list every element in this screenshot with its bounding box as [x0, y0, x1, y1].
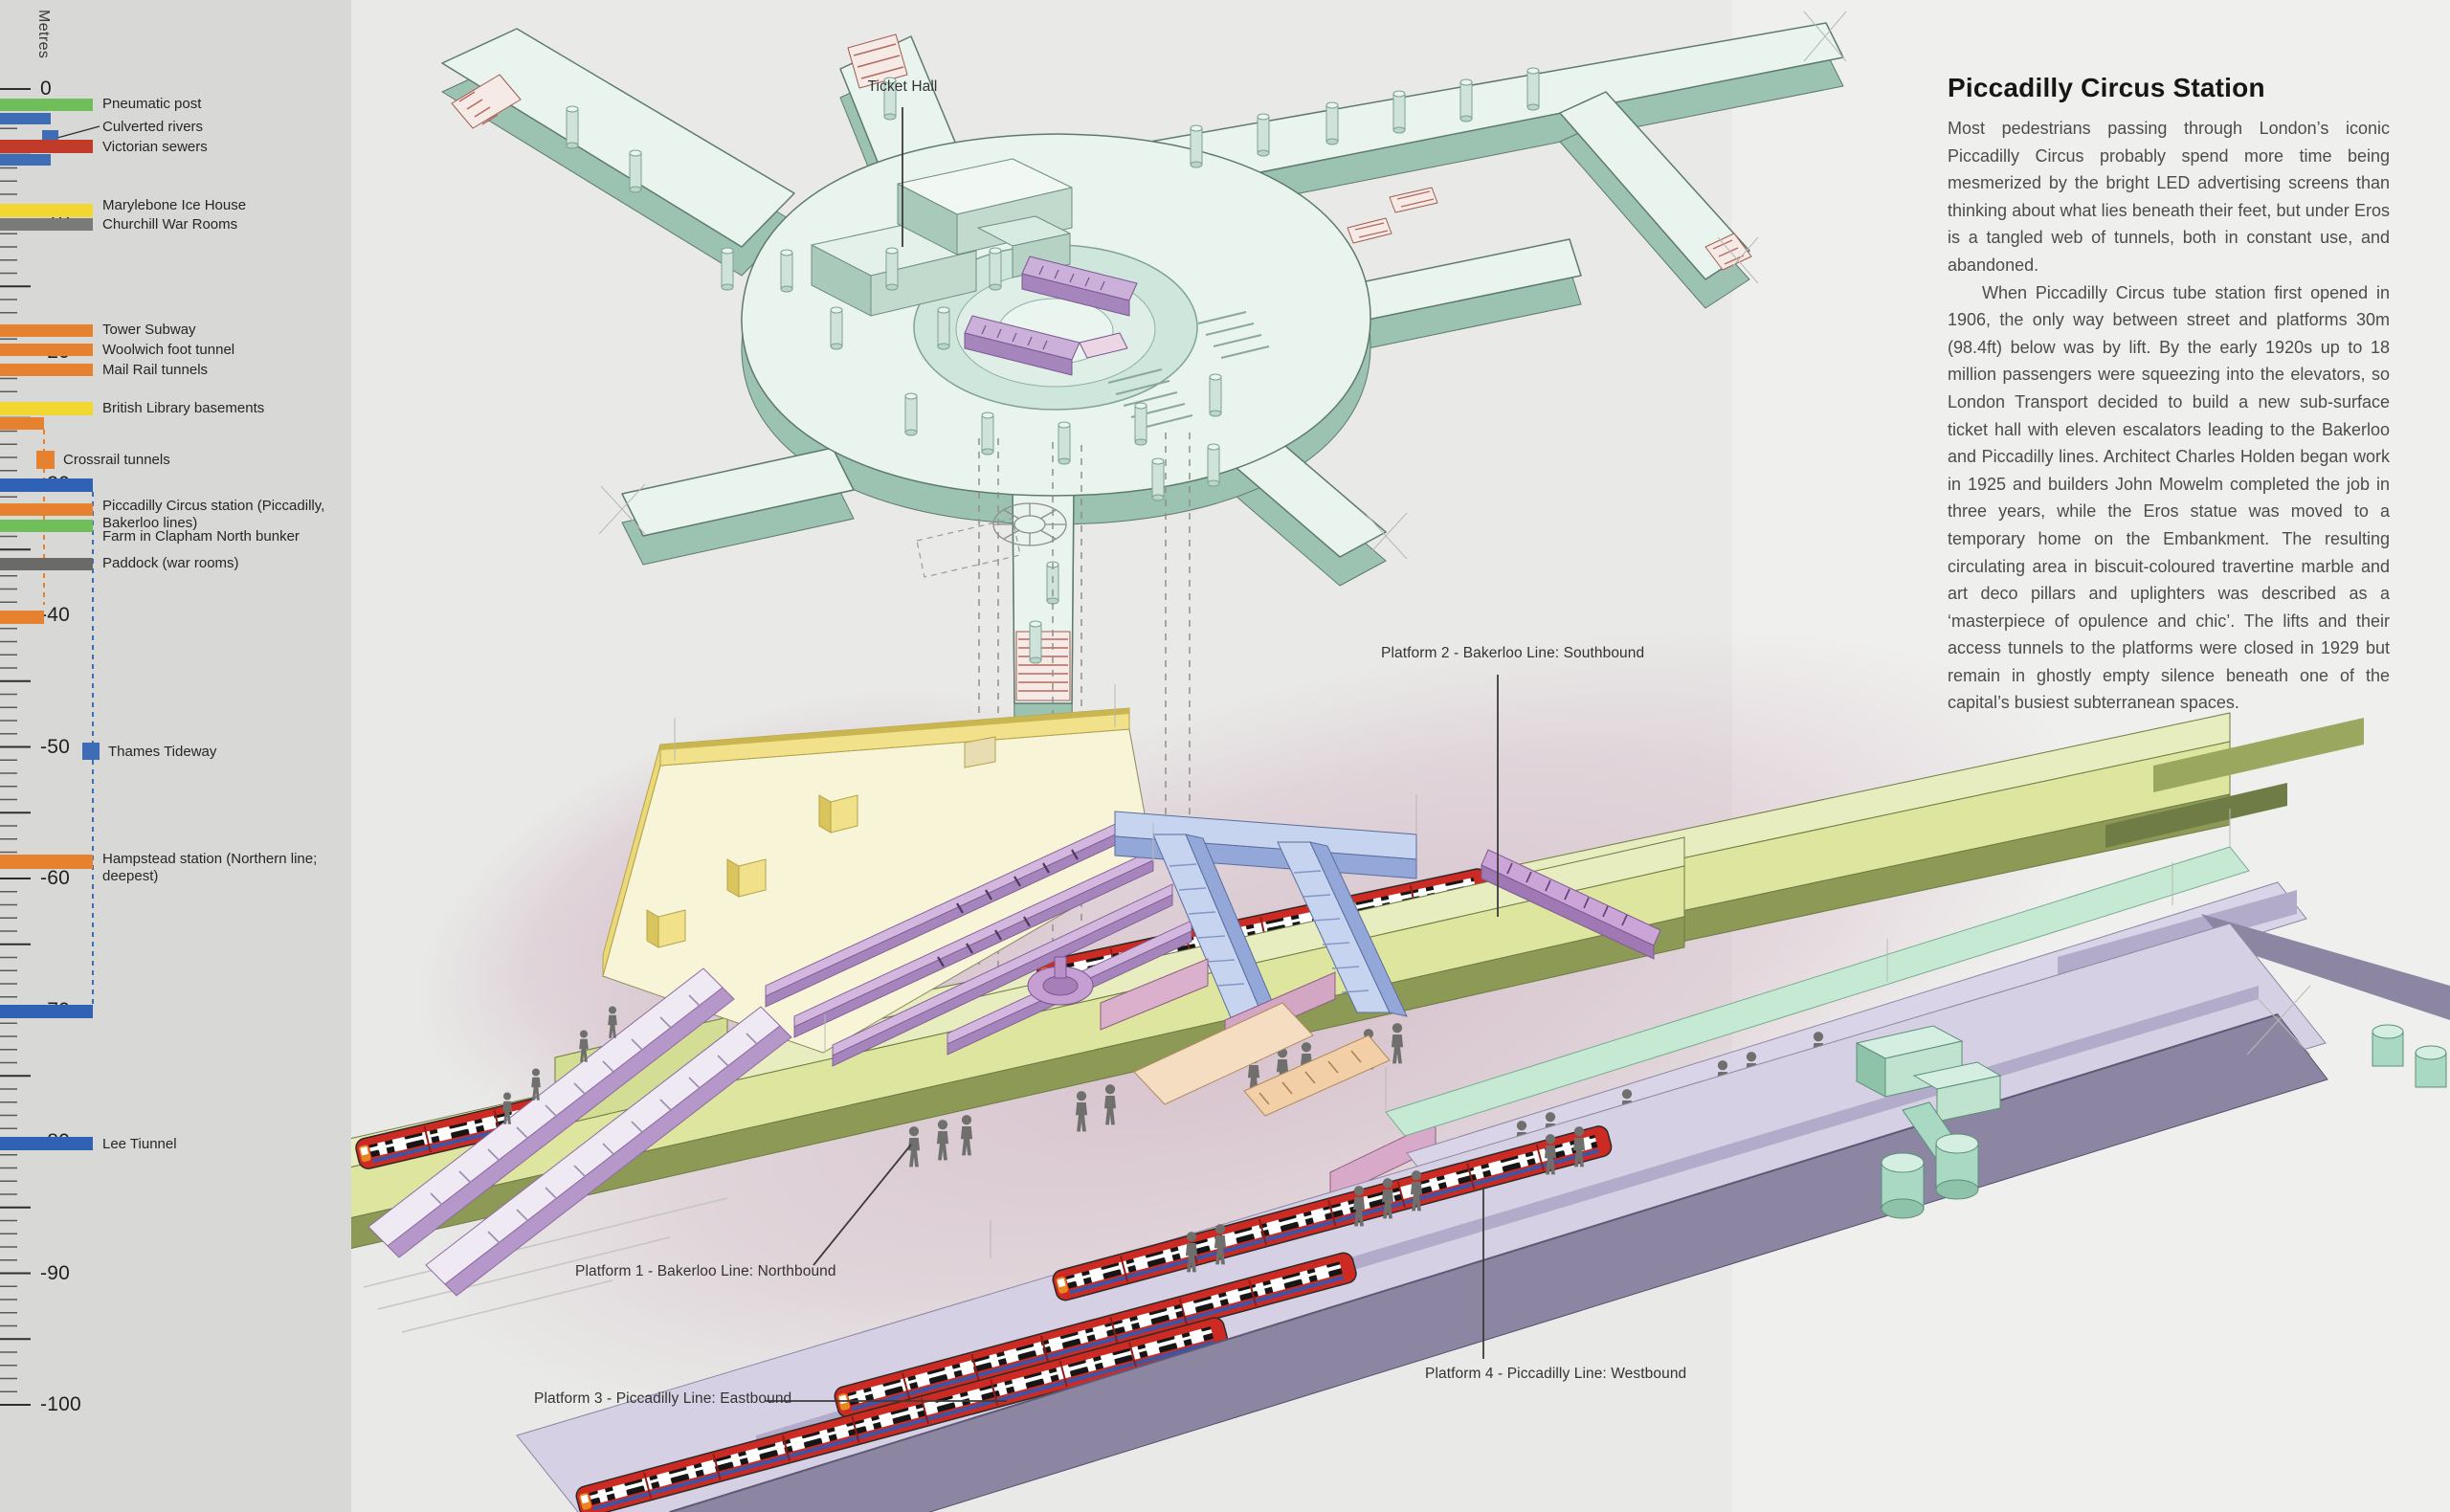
scale-item-bar [0, 402, 93, 415]
scale-item-label: Victorian sewers [102, 139, 208, 156]
scale-item-bar [0, 324, 93, 337]
scale-item-label: Pneumatic post [102, 96, 201, 113]
scale-item-label: Hampstead station (Northern line; deepes… [102, 851, 317, 886]
scale-item-bar [0, 113, 51, 124]
scale-item-square [36, 451, 55, 469]
scale-item-label: Tower Subway [102, 322, 196, 339]
scale-item-label: Mail Rail tunnels [102, 362, 208, 379]
page: { "page": { "background": "#e9e9e7", "si… [0, 0, 2450, 1512]
article-paragraph-1: Most pedestrians passing through London’… [1948, 115, 2390, 279]
scale-item-label: Crossrail tunnels [63, 452, 170, 469]
illustration-label-platform-4: Platform 4 - Piccadilly Line: Westbound [1425, 1366, 1686, 1383]
depth-number: -40 [40, 605, 70, 625]
scale-item-bar [0, 611, 44, 624]
scale-item-bar [0, 1137, 93, 1150]
hidden-edge [917, 519, 1020, 577]
scale-item-label: Paddock (war rooms) [102, 555, 239, 572]
scale-item-label: Culverted rivers [102, 119, 203, 136]
scale-item-bar [0, 364, 93, 376]
scale-item-bar [0, 558, 93, 570]
scale-item-label: Churchill War Rooms [102, 216, 237, 233]
ticket-hall [442, 23, 1843, 732]
illustration-label-platform-3: Platform 3 - Piccadilly Line: Eastbound [534, 1390, 791, 1408]
depth-scale-sidebar: Metres 0-10-20-30-40-50-60-70-80-90-100 … [0, 0, 351, 1512]
depth-number: -60 [40, 868, 70, 888]
illustration-label-platform-2: Platform 2 - Bakerloo Line: Southbound [1381, 645, 1644, 662]
scale-item-bar [0, 1005, 93, 1018]
scale-item-bar [0, 99, 93, 111]
scale-item-square [82, 743, 100, 760]
scale-item-bar [0, 520, 93, 532]
scale-item-label: Woolwich foot tunnel [102, 342, 234, 359]
article-paragraph-2: When Piccadilly Circus tube station firs… [1948, 279, 2390, 718]
depth-number: -50 [40, 737, 70, 757]
scale-item-bar [0, 503, 93, 516]
scale-item-label: British Library basements [102, 400, 264, 417]
metres-unit-label: Metres [34, 10, 52, 58]
scale-item-bar [0, 855, 93, 869]
article: Piccadilly Circus Station Most pedestria… [1948, 73, 2390, 717]
scale-item-bar [0, 417, 44, 430]
depth-number: -90 [40, 1263, 70, 1283]
article-title: Piccadilly Circus Station [1948, 73, 2390, 103]
scale-item-label: Thames Tideway [108, 744, 216, 761]
depth-number: -100 [40, 1394, 81, 1414]
scale-item-bar [0, 478, 93, 492]
illustration-label-platform-1: Platform 1 - Bakerloo Line: Northbound [575, 1263, 836, 1280]
scale-item-bar [0, 218, 93, 231]
scale-item-bar [0, 154, 51, 166]
scale-item-label: Marylebone Ice House [102, 197, 246, 214]
depth-number: 0 [40, 78, 52, 99]
scale-item-leader [57, 126, 100, 138]
scale-item-label: Farm in Clapham North bunker [102, 528, 300, 545]
scale-item-label: Lee Tiunnel [102, 1136, 177, 1153]
scale-item-bar [0, 204, 93, 217]
illustration-label-ticket-hall: Ticket Hall [868, 78, 938, 96]
scale-item-bar [0, 344, 93, 356]
scale-item-bar [0, 140, 93, 153]
